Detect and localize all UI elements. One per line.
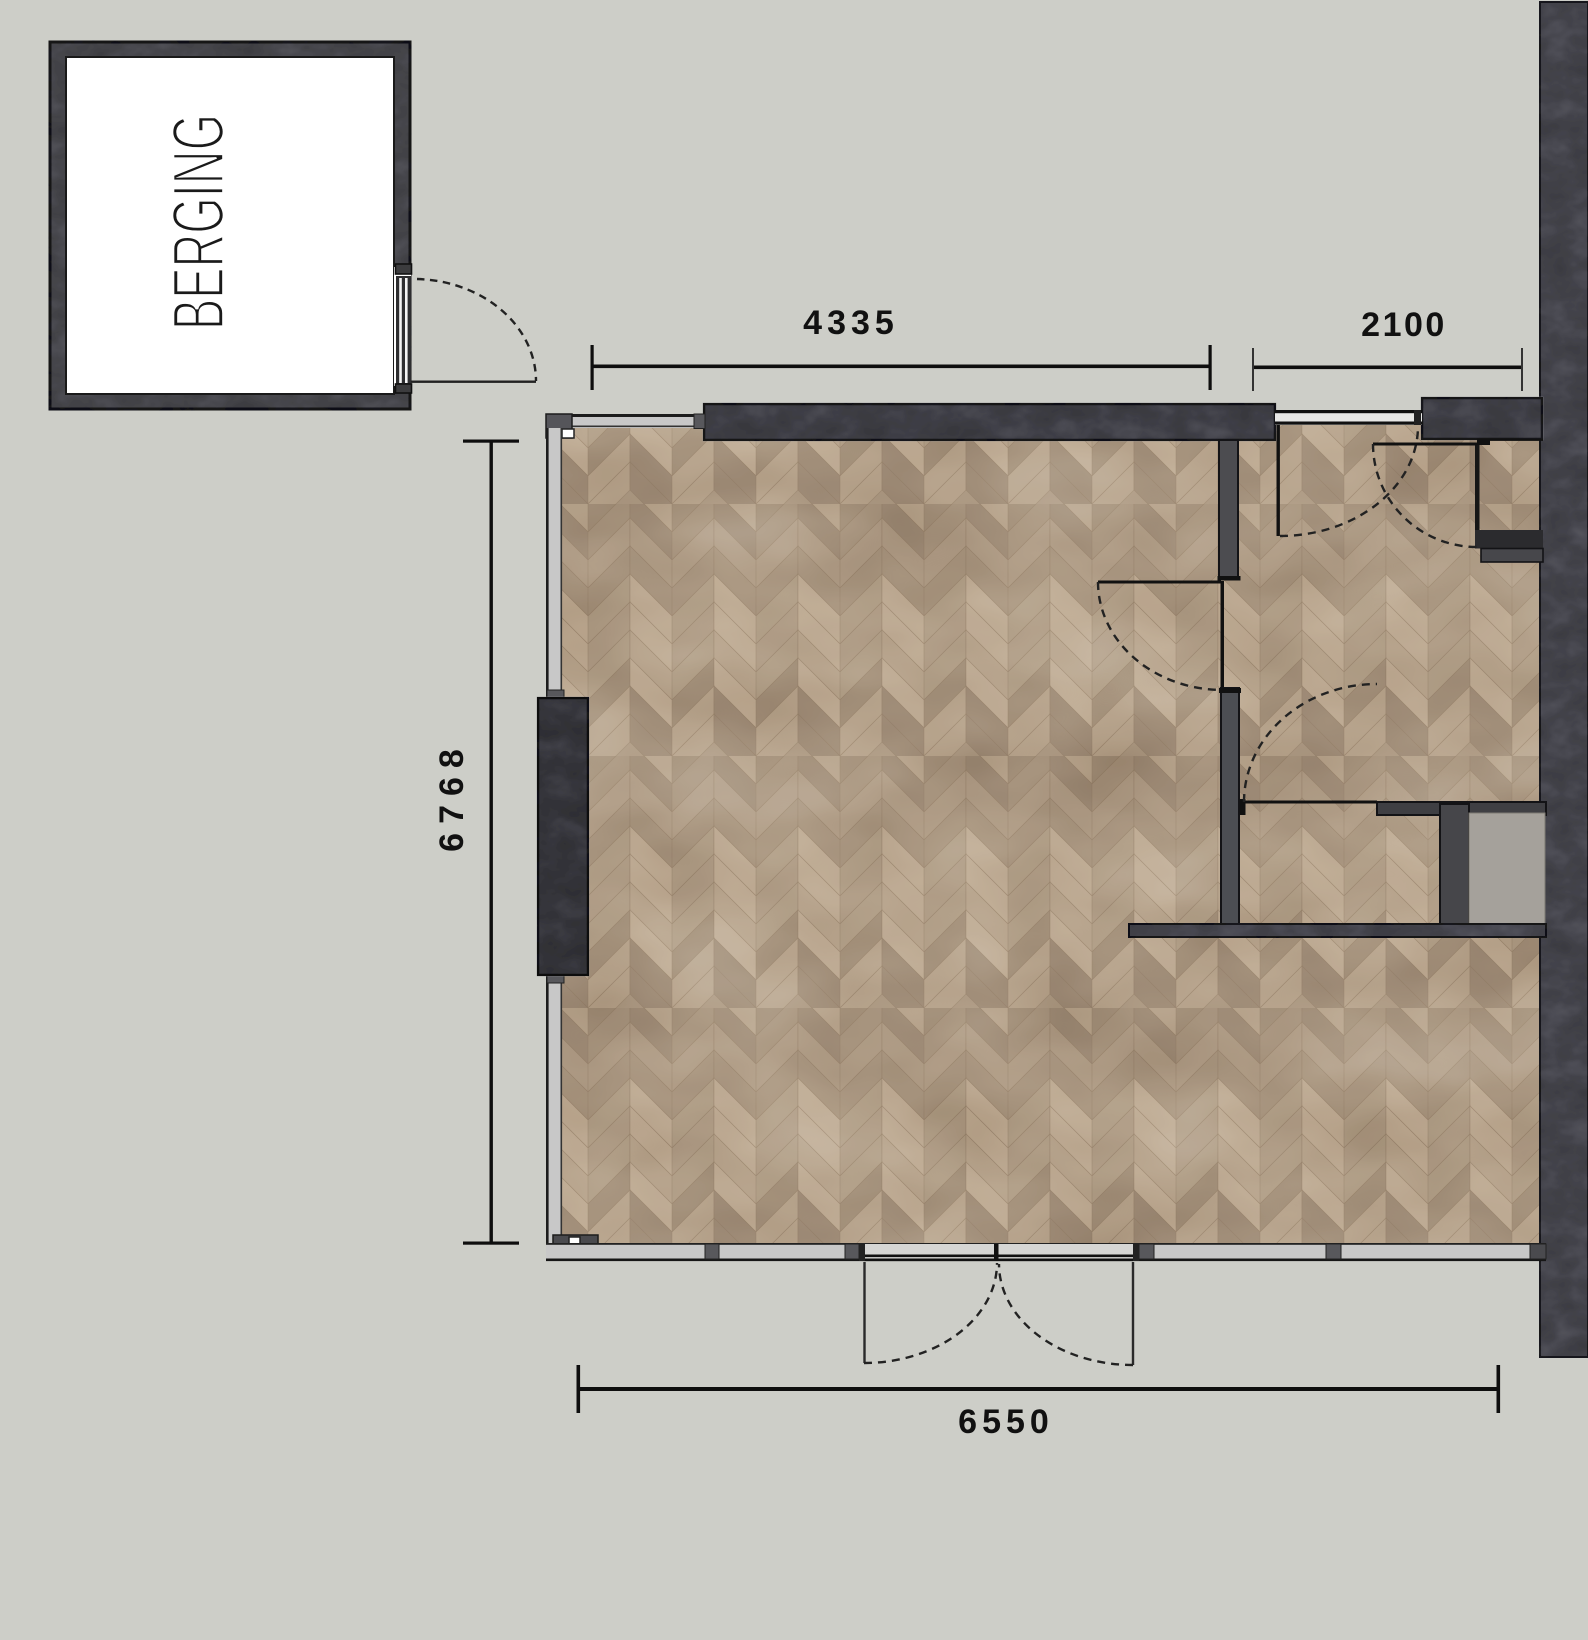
svg-text:2100: 2100 <box>1361 306 1447 344</box>
svg-text:4335: 4335 <box>803 304 899 342</box>
svg-text:BERGING: BERGING <box>159 114 240 330</box>
svg-text:6550: 6550 <box>958 1403 1054 1441</box>
svg-text:6768: 6768 <box>433 740 471 852</box>
